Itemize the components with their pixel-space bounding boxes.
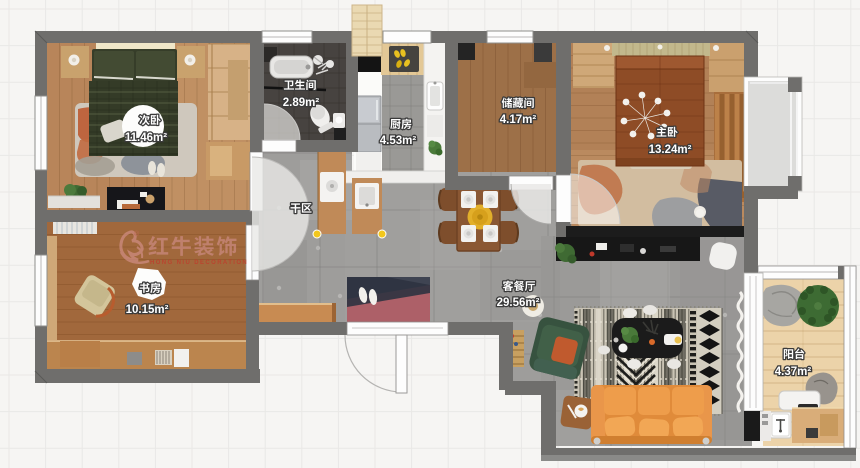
svg-text:HONG NIU DECORATION: HONG NIU DECORATION	[150, 260, 248, 266]
svg-text:4.53m²: 4.53m²	[380, 135, 417, 147]
svg-text:4.37m²: 4.37m²	[775, 366, 812, 378]
svg-text:®: ®	[134, 230, 140, 238]
svg-text:29.56m²: 29.56m²	[497, 297, 540, 309]
svg-text:2.89m²: 2.89m²	[283, 97, 320, 109]
svg-text:4.17m²: 4.17m²	[500, 114, 537, 126]
svg-text:10.15m²: 10.15m²	[126, 304, 169, 316]
svg-text:13.24m²: 13.24m²	[649, 144, 692, 156]
svg-text:11.46m²: 11.46m²	[125, 132, 167, 144]
